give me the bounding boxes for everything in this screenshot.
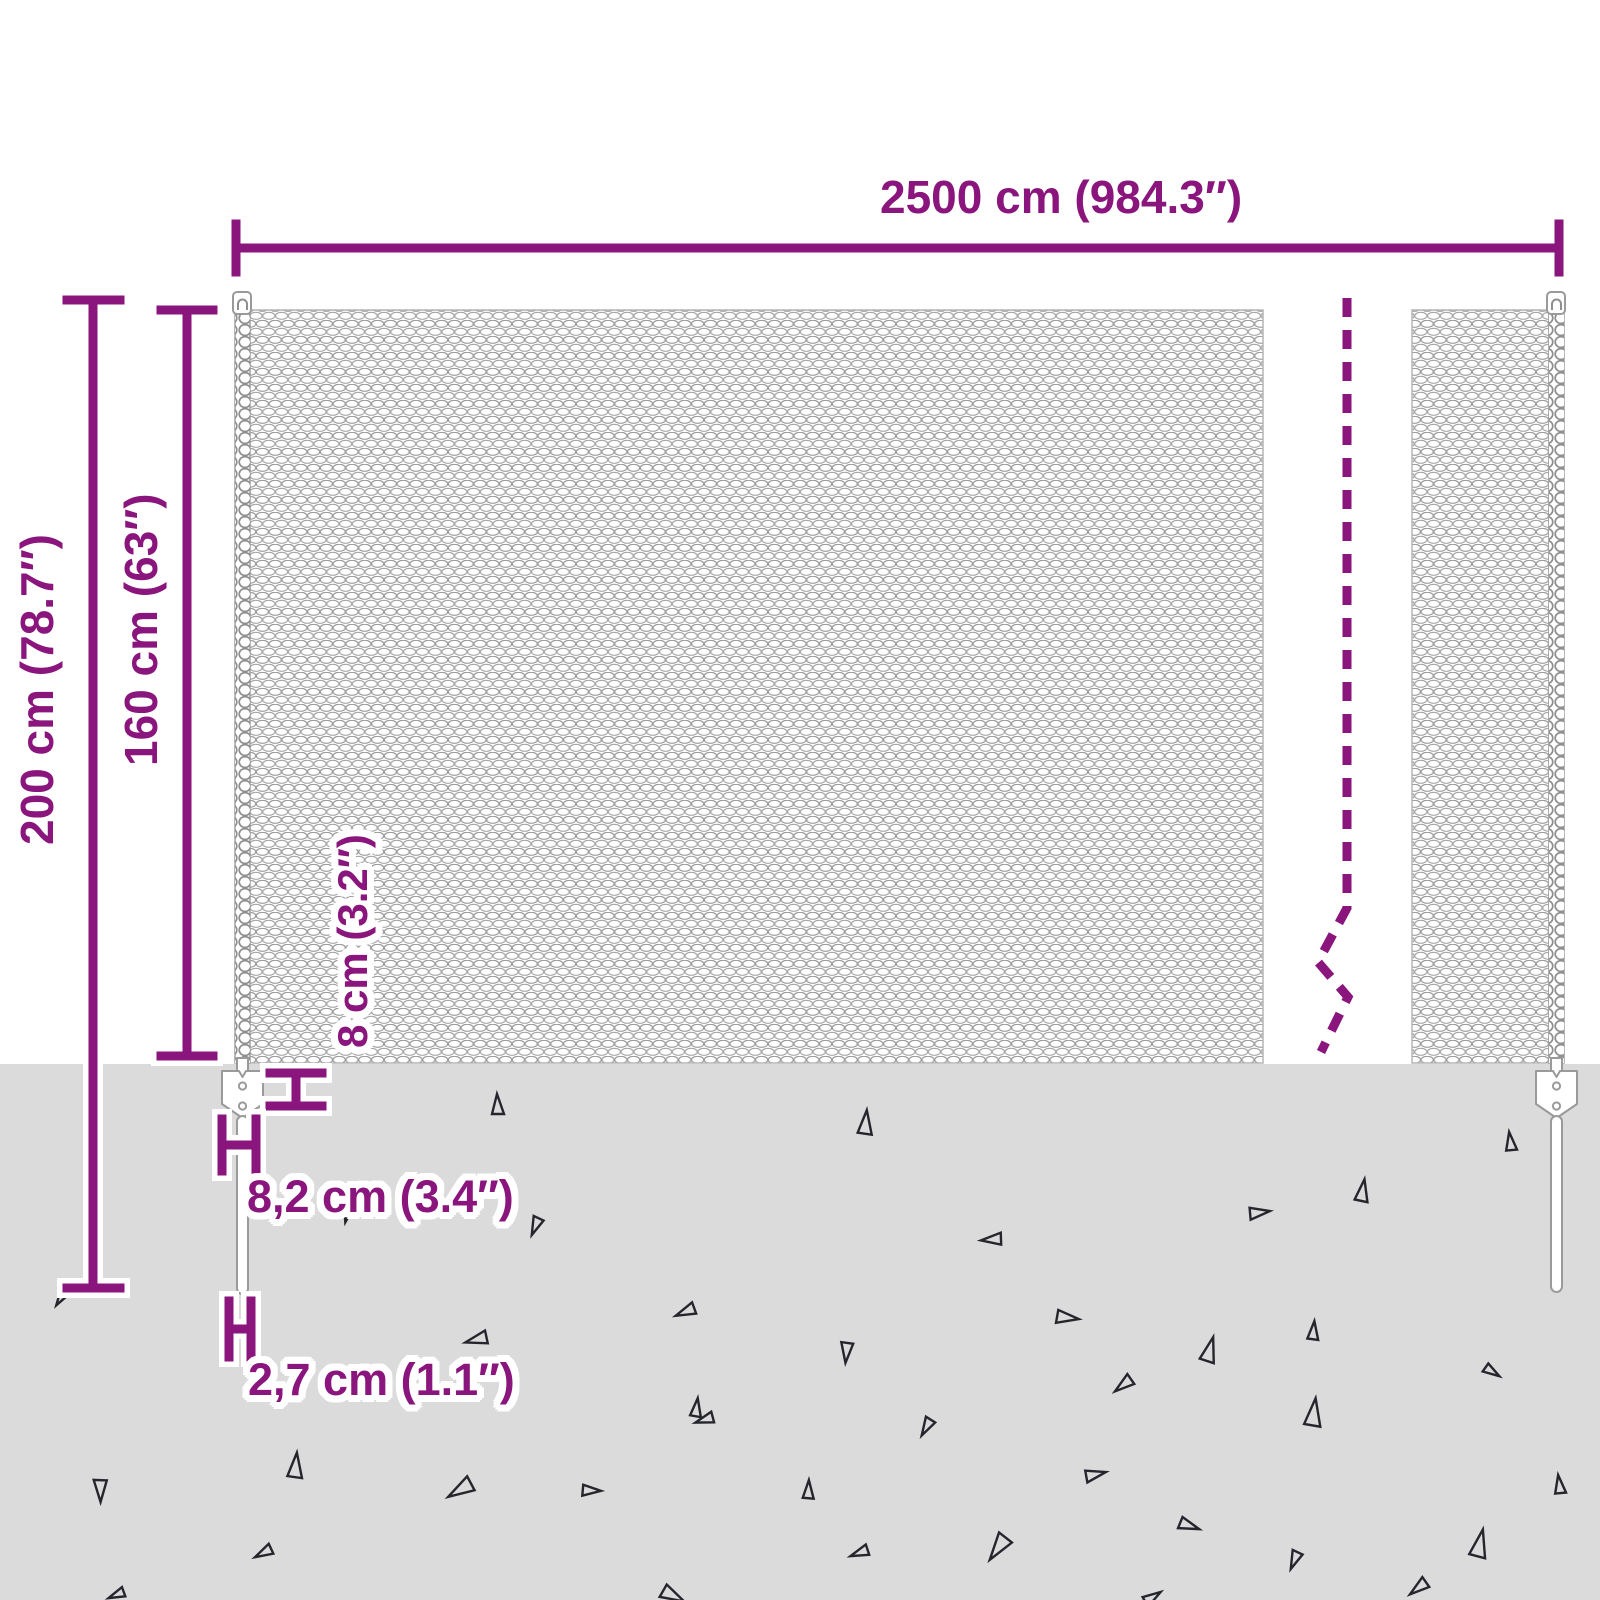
diagram-scene — [0, 0, 1600, 1600]
right-spike — [1551, 1116, 1562, 1292]
right-post-cap — [1547, 292, 1565, 314]
right-mesh-panel — [1412, 292, 1565, 1063]
left-post-cap — [233, 292, 251, 314]
plate-hole — [239, 1082, 246, 1089]
width-dimension-line — [236, 224, 1559, 272]
plate-hole — [1553, 1082, 1560, 1089]
main-mesh-panel — [233, 292, 1263, 1063]
fence-dimension-diagram: 2500 cm (984.3″) 200 cm (78.7″) 160 cm (… — [0, 0, 1600, 1600]
mesh-height-dimension-line — [161, 310, 213, 1056]
plate-hole — [239, 1102, 246, 1109]
continuation-dashed-line — [1318, 298, 1348, 1052]
plate-hole — [1553, 1102, 1560, 1109]
